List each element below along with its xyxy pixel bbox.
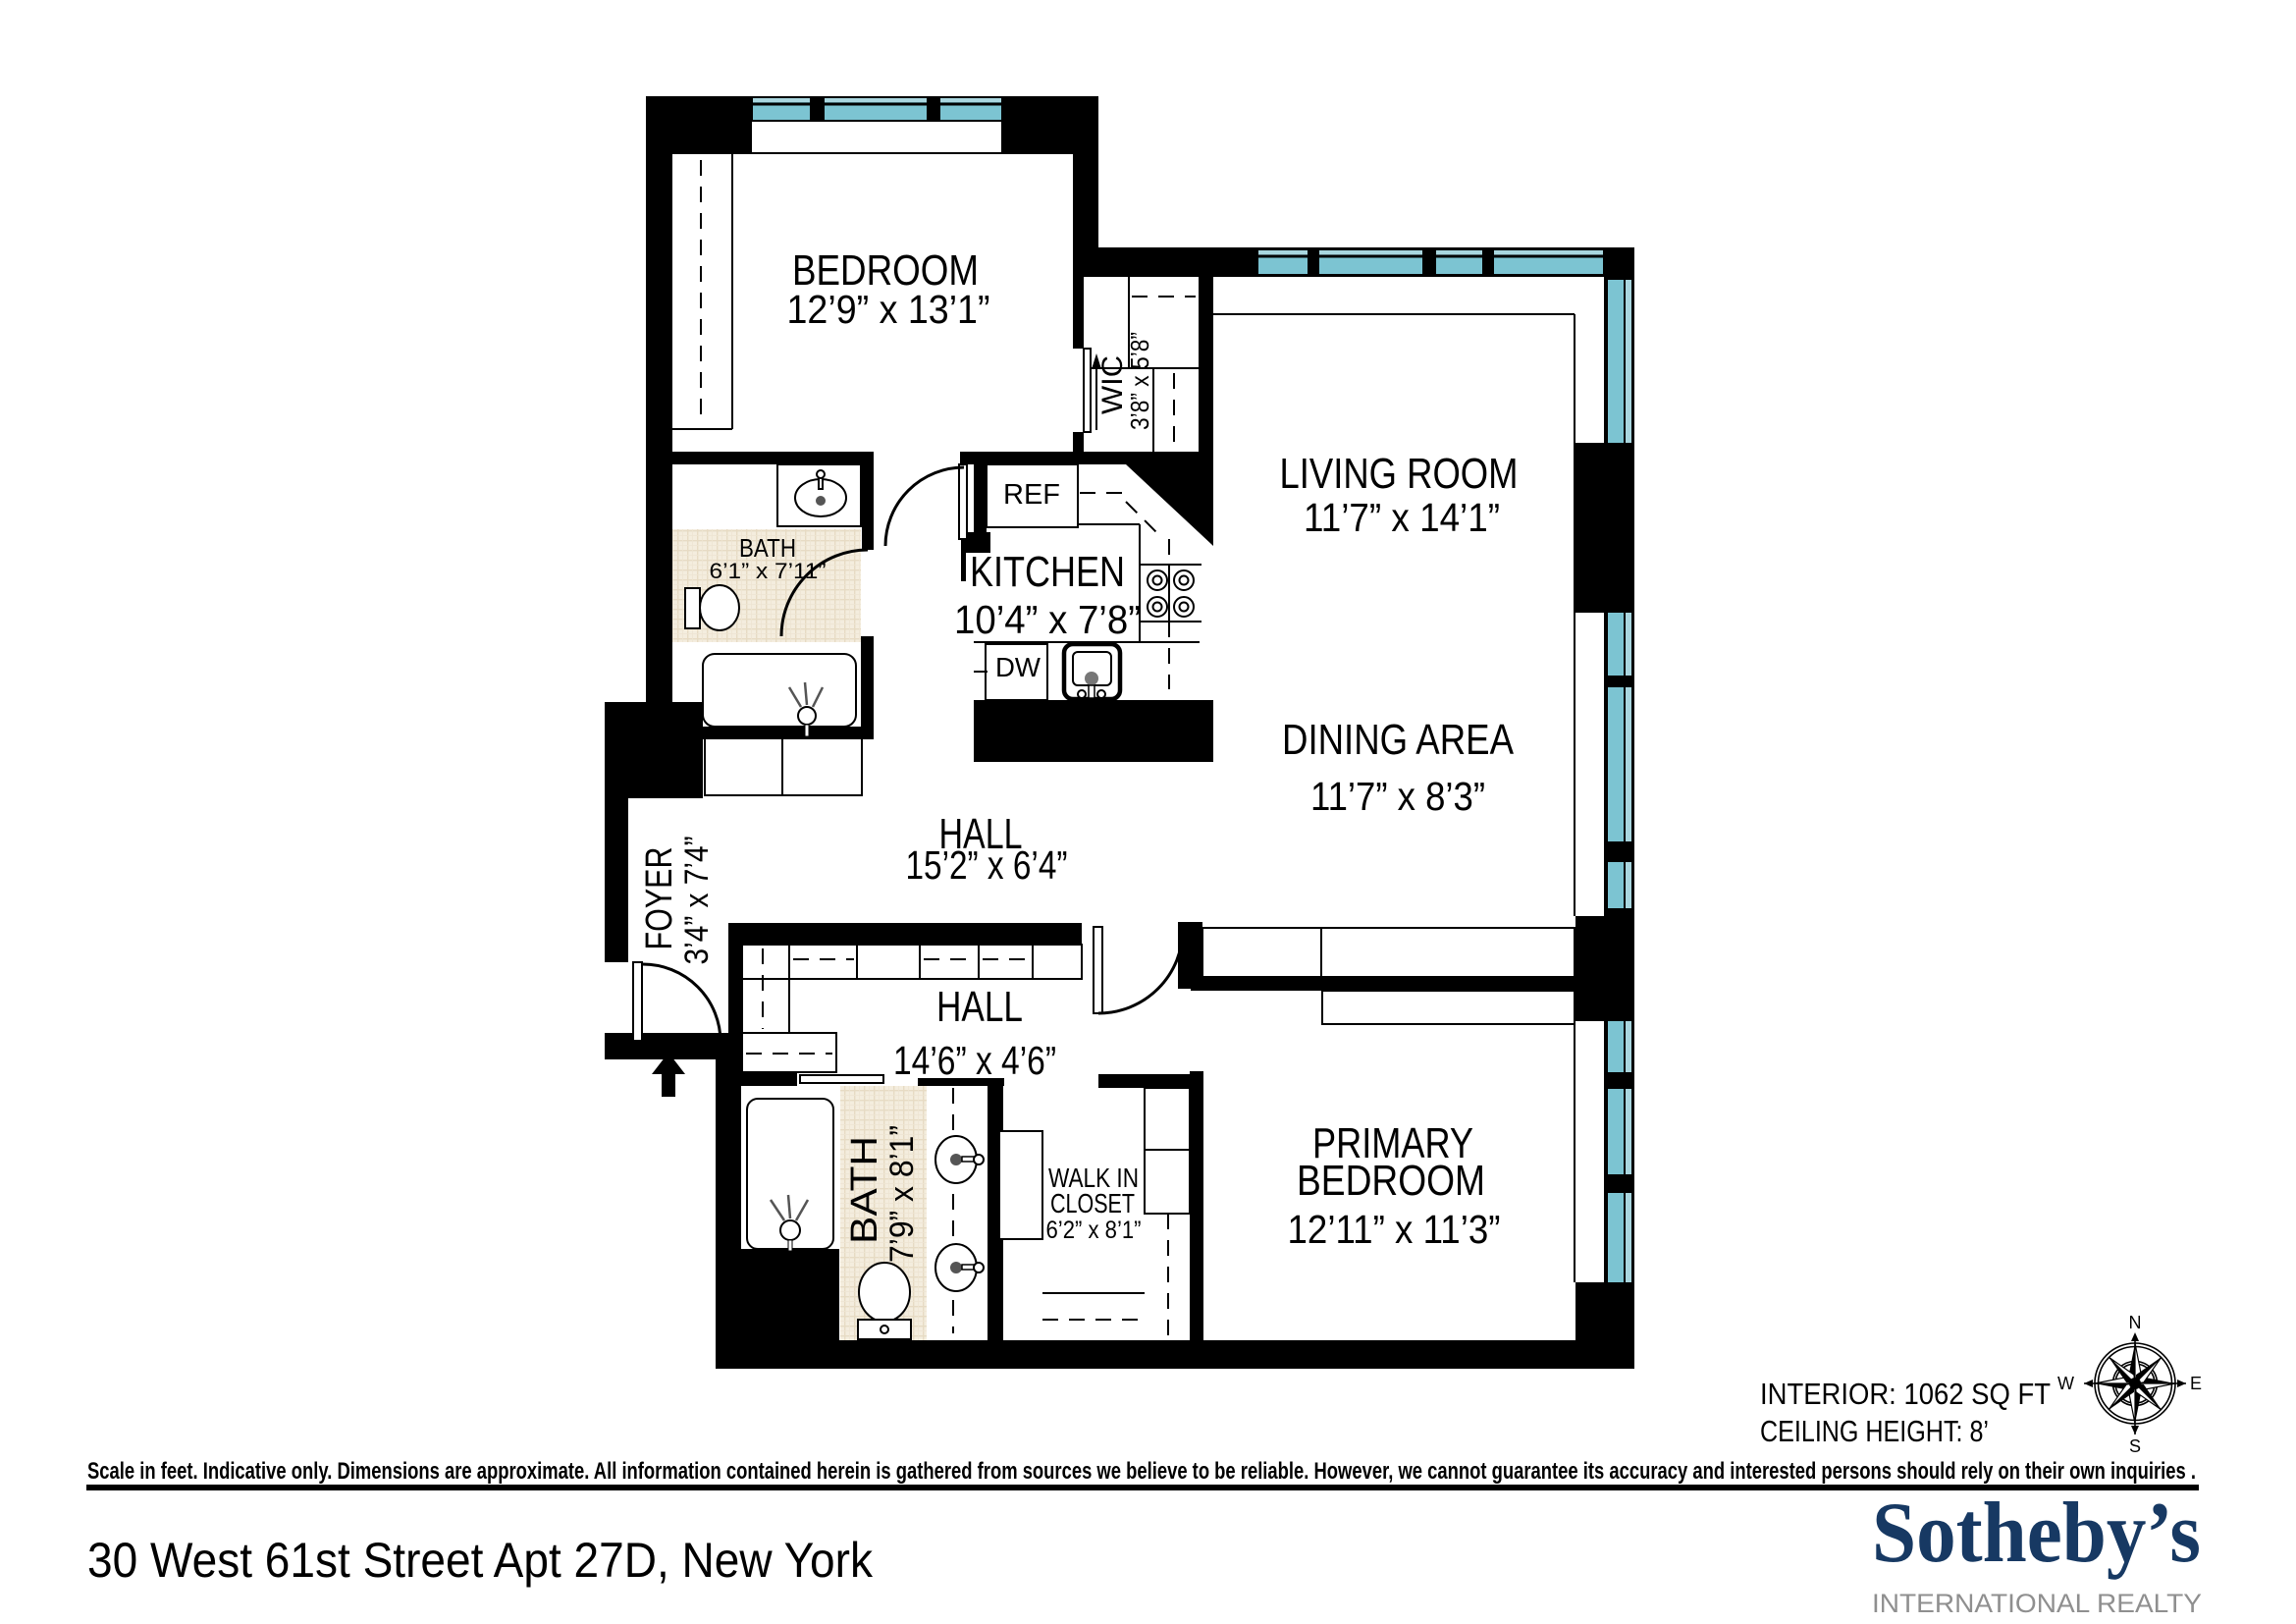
svg-text:E: E bbox=[2190, 1374, 2202, 1393]
svg-text:INTERIOR: 1062 SQ FT: INTERIOR: 1062 SQ FT bbox=[1760, 1377, 2051, 1411]
svg-text:11’7” x 8’3”: 11’7” x 8’3” bbox=[1310, 774, 1485, 819]
svg-text:N: N bbox=[2129, 1313, 2142, 1332]
svg-text:10’4” x 7’8”: 10’4” x 7’8” bbox=[954, 597, 1141, 642]
svg-text:12’9” x 13’1”: 12’9” x 13’1” bbox=[787, 287, 990, 332]
svg-text:30 West 61st Street Apt 27D, N: 30 West 61st Street Apt 27D, New York bbox=[87, 1533, 874, 1588]
svg-text:14’6” x 4’6”: 14’6” x 4’6” bbox=[893, 1038, 1056, 1083]
svg-text:HALL: HALL bbox=[936, 983, 1023, 1031]
svg-text:CLOSET: CLOSET bbox=[1050, 1188, 1135, 1218]
svg-text:3’8” x 5’8”: 3’8” x 5’8” bbox=[1125, 332, 1154, 430]
svg-text:7’9” x 8’1”: 7’9” x 8’1” bbox=[883, 1125, 921, 1263]
svg-text:6’2” x 8’1”: 6’2” x 8’1” bbox=[1046, 1217, 1142, 1244]
svg-text:DINING AREA: DINING AREA bbox=[1282, 716, 1515, 764]
svg-text:Sotheby’s: Sotheby’s bbox=[1872, 1486, 2201, 1581]
svg-text:6’1” x 7’11”: 6’1” x 7’11” bbox=[710, 559, 827, 583]
svg-text:S: S bbox=[2129, 1436, 2141, 1456]
svg-text:BEDROOM: BEDROOM bbox=[1297, 1157, 1485, 1205]
svg-text:BATH: BATH bbox=[844, 1136, 885, 1244]
svg-text:DW: DW bbox=[995, 652, 1041, 682]
svg-text:15’2” x 6’4”: 15’2” x 6’4” bbox=[906, 842, 1068, 888]
svg-text:3’4” x 7’4”: 3’4” x 7’4” bbox=[678, 837, 716, 965]
svg-text:LIVING ROOM: LIVING ROOM bbox=[1280, 450, 1519, 498]
svg-text:REF: REF bbox=[1003, 479, 1060, 511]
svg-text:Scale in feet. Indicative only: Scale in feet. Indicative only. Dimensio… bbox=[87, 1458, 2196, 1485]
svg-text:FOYER: FOYER bbox=[639, 847, 680, 950]
svg-text:KITCHEN: KITCHEN bbox=[970, 548, 1125, 596]
svg-text:CEILING HEIGHT: 8’: CEILING HEIGHT: 8’ bbox=[1760, 1414, 1989, 1448]
svg-text:12’11” x 11’3”: 12’11” x 11’3” bbox=[1288, 1207, 1501, 1252]
svg-text:11’7” x 14’1”: 11’7” x 14’1” bbox=[1304, 495, 1500, 540]
svg-text:INTERNATIONAL REALTY: INTERNATIONAL REALTY bbox=[1872, 1589, 2202, 1618]
svg-text:W: W bbox=[2057, 1374, 2074, 1393]
